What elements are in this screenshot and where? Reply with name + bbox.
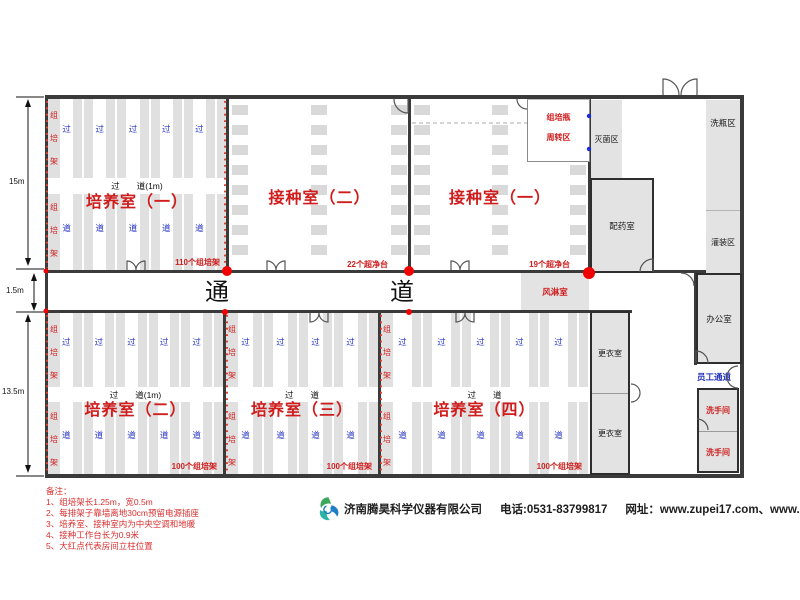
aisle-label-bottom: 道 (510, 429, 529, 441)
note-item: 4、接种工作台长为0.9米 (46, 530, 199, 541)
rack-count-label: 100个组培架 (172, 461, 217, 472)
clean-bench (414, 145, 430, 155)
room-inoculation-1: 接种室（一） 19个超净台 (412, 99, 588, 270)
staff-passage-label: 员工通道 (697, 371, 731, 383)
air-shower-room: 风淋室 (521, 273, 589, 310)
sterilization-label: 灭菌区 (591, 100, 622, 178)
clean-bench (311, 125, 327, 135)
rack-column-label: 组培架 (226, 318, 238, 386)
aisle-label-bottom: 道 (549, 429, 568, 441)
clean-bench (414, 125, 430, 135)
clean-bench (391, 225, 407, 235)
aisle-label-top: 过 (471, 336, 490, 348)
room-culture-1: 组培架组培架过道过道过道过道过道过 道(1m) 培养室（一） 110个组培架 (48, 99, 226, 270)
aisle-label-top: 过 (238, 336, 253, 348)
wall-r1-r2 (226, 95, 229, 273)
aisle-label-bottom: 道 (60, 429, 73, 441)
aisle-label-top: 过 (393, 336, 412, 348)
wall-bottom (45, 474, 742, 478)
wall-r2-r3 (408, 95, 411, 273)
aisle-label-top: 过 (126, 123, 139, 135)
clean-bench (232, 165, 248, 175)
bottle-wash-label: 洗瓶区 (706, 108, 740, 138)
clean-bench (492, 225, 508, 235)
clean-bench (232, 125, 248, 135)
company-website: 网址：www.zupei17.com、www.cnhtkj.com (625, 501, 800, 517)
rack-count-label: 100个组培架 (537, 461, 582, 472)
room-culture-4: 组培架组培架过道过道过道过道过道过 道 培养室（四） 100个组培架 (381, 313, 588, 474)
sterilization-area: 灭菌区 (591, 100, 622, 178)
filling-label: 灌装区 (706, 211, 740, 274)
dim-top-label: 15m (9, 177, 25, 186)
restroom-divider (699, 431, 737, 432)
rack-column-label: 组培架 (48, 318, 60, 386)
footer-company-line: 济南腾昊科学仪器有限公司 电话:0531-83799817 网址：www.zup… (344, 501, 800, 517)
rack-column-label: 组培架 (381, 318, 393, 386)
aisle-label-top: 过 (343, 336, 358, 348)
note-item: 2、每排架子靠墙离地30cm预留电源插座 (46, 508, 199, 519)
aisle-label-bottom: 道 (193, 222, 206, 234)
room-title: 培养室（三） (226, 396, 378, 420)
changing-room-1-label: 更衣室 (592, 348, 628, 359)
clean-bench (414, 165, 430, 175)
room-title: 培养室（四） (381, 396, 588, 420)
aisle-label-bottom: 道 (343, 429, 358, 441)
clean-bench (232, 145, 248, 155)
clean-bench (391, 125, 407, 135)
clean-bench (570, 165, 586, 175)
aisle-label-bottom: 道 (308, 429, 323, 441)
aisle-label-top: 过 (93, 336, 106, 348)
clean-bench (414, 225, 430, 235)
clean-bench (414, 105, 430, 115)
clean-bench (570, 245, 586, 255)
aisle-label-bottom: 道 (273, 429, 288, 441)
clean-bench (391, 245, 407, 255)
filling-area: 灌装区 (706, 210, 740, 274)
room-title: 培养室（一） (48, 188, 226, 212)
clean-bench (311, 245, 327, 255)
changing-divider (592, 393, 628, 394)
aisle-label-top: 过 (190, 336, 203, 348)
clean-bench (391, 165, 407, 175)
bench-count-label: 22个超净台 (347, 259, 388, 270)
room-title: 接种室（一） (412, 184, 588, 208)
aisle-label-top: 过 (432, 336, 451, 348)
aisle-label-top: 过 (308, 336, 323, 348)
restroom-2-label: 洗手间 (699, 447, 737, 458)
aisle-label-bottom: 道 (60, 222, 73, 234)
clean-bench (492, 165, 508, 175)
pharmacy-label: 配药室 (592, 180, 652, 271)
clean-bench (391, 145, 407, 155)
aisle-label-top: 过 (60, 336, 73, 348)
clean-bench (570, 225, 586, 235)
clean-bench (311, 105, 327, 115)
aisle-label-bottom: 道 (93, 429, 106, 441)
aisle-label-bottom: 道 (393, 429, 412, 441)
rack-column-label: 组培架 (48, 104, 60, 176)
aisle-label-bottom: 道 (158, 429, 171, 441)
clean-bench (232, 245, 248, 255)
aisle-label-bottom: 道 (160, 222, 173, 234)
aisle-label-bottom: 道 (125, 429, 138, 441)
air-shower-label: 风淋室 (521, 273, 589, 310)
floor-plan: 灭菌区 配药室 洗瓶区 灌装区 办公室 员工通道 洗手间 洗手间 更衣室 更衣室… (0, 0, 800, 600)
dim-mid-label: 1.5m (6, 286, 24, 295)
clean-bench (492, 145, 508, 155)
clean-bench (311, 225, 327, 235)
office-label: 办公室 (698, 275, 740, 362)
aisle-label-top: 过 (158, 336, 171, 348)
aisle-label-top: 过 (125, 336, 138, 348)
aisle-label-top: 过 (510, 336, 529, 348)
aisle-label-bottom: 道 (93, 222, 106, 234)
aisle-label-bottom: 道 (190, 429, 203, 441)
room-culture-2: 组培架组培架过道过道过道过道过道过 道(1m) 培养室（二） 100个组培架 (48, 313, 223, 474)
bench-count-label: 19个超净台 (529, 259, 570, 270)
aisle-label-bottom: 道 (471, 429, 490, 441)
clean-bench (391, 105, 407, 115)
notes-title: 备注： (46, 486, 199, 497)
office-room: 办公室 (696, 273, 742, 364)
corridor-char-2: 道 (390, 280, 414, 304)
company-logo-icon (315, 495, 342, 523)
note-item: 1、组培架长1.25m，宽0.5m (46, 497, 199, 508)
clean-bench (311, 165, 327, 175)
company-name: 济南腾昊科学仪器有限公司 (344, 501, 482, 517)
clean-bench (492, 125, 508, 135)
aisle-label-top: 过 (60, 123, 73, 135)
rack-count-label: 110个组培架 (175, 257, 220, 268)
note-item: 3、培养室、接种室内为中央空调和地暖 (46, 519, 199, 530)
notes-block: 备注： 1、组培架长1.25m，宽0.5m 2、每排架子靠墙离地30cm预留电源… (46, 486, 199, 552)
clean-bench (492, 245, 508, 255)
note-item: 5、大红点代表房间立柱位置 (46, 541, 199, 552)
clean-bench (232, 105, 248, 115)
room-title: 接种室（二） (231, 184, 408, 208)
aisle-label-top: 过 (273, 336, 288, 348)
changing-room-block: 更衣室 更衣室 (590, 311, 630, 475)
dim-bottom-label: 13.5m (2, 387, 24, 396)
restroom-block: 洗手间 洗手间 (697, 388, 739, 473)
clean-bench (414, 245, 430, 255)
aisle-label-bottom: 道 (238, 429, 253, 441)
corridor-char-1: 通 (205, 280, 229, 304)
aisle-label-top: 过 (549, 336, 568, 348)
aisle-label-bottom: 道 (432, 429, 451, 441)
rack-count-label: 100个组培架 (327, 461, 372, 472)
changing-room-2-label: 更衣室 (592, 428, 628, 439)
aisle-label-top: 过 (193, 123, 206, 135)
restroom-1-label: 洗手间 (699, 405, 737, 416)
company-phone: 电话:0531-83799817 (500, 501, 607, 517)
aisle-label-bottom: 道 (126, 222, 139, 234)
aisle-label-top: 过 (160, 123, 173, 135)
room-inoculation-2: 接种室（二） 22个超净台 (231, 99, 408, 270)
room-culture-3: 组培架组培架过道过道过道过道过 道 培养室（三） 100个组培架 (226, 313, 378, 474)
clean-bench (492, 105, 508, 115)
aisle-label-top: 过 (93, 123, 106, 135)
pillar-dots (44, 266, 596, 315)
clean-bench (311, 145, 327, 155)
room-title: 培养室（二） (48, 396, 223, 420)
pharmacy-room: 配药室 (590, 178, 654, 273)
bottle-wash-area: 洗瓶区 (706, 100, 740, 210)
clean-bench (232, 225, 248, 235)
